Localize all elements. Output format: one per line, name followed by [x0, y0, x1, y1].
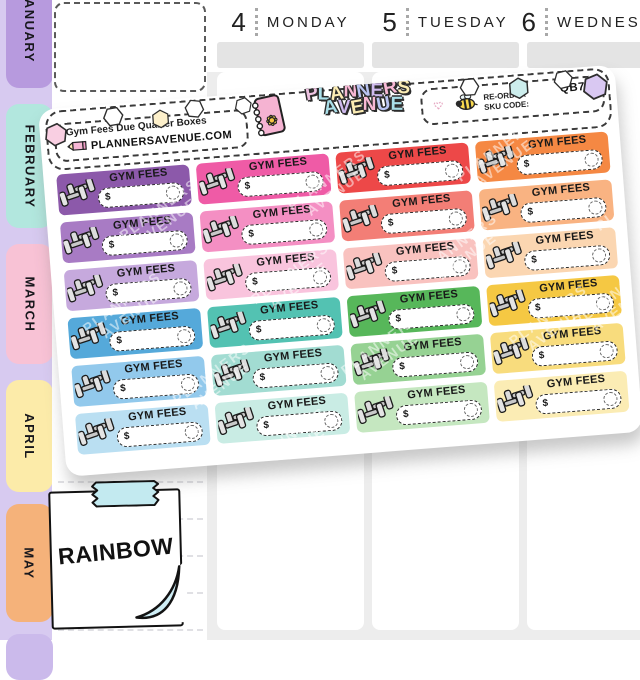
currency-symbol: $ [105, 192, 111, 203]
currency-symbol: $ [256, 324, 262, 335]
day-header: 4MONDAY [217, 4, 364, 40]
month-tab-partial[interactable] [6, 634, 53, 680]
amount-circle [320, 366, 335, 381]
currency-symbol: $ [523, 159, 529, 170]
amount-box: $ [112, 373, 199, 400]
gym-fees-sticker: GYM FEES$ [199, 201, 335, 252]
gym-fees-sticker: GYM FEES$ [350, 334, 486, 385]
currency-symbol: $ [399, 361, 405, 372]
currency-symbol: $ [108, 239, 114, 250]
month-tab-may[interactable]: MAY [6, 504, 53, 622]
sticker-grid: GYM FEES$GYM FEES$GYM FEES$GYM FEES$GYM … [56, 131, 629, 455]
gym-fees-sticker: GYM FEES$ [64, 260, 200, 311]
amount-circle [595, 296, 610, 311]
gym-fees-sticker: GYM FEES$ [211, 345, 347, 396]
amount-box: $ [380, 208, 467, 235]
amount-circle [448, 211, 463, 226]
amount-circle [460, 355, 475, 370]
currency-symbol: $ [116, 335, 122, 346]
amount-box: $ [252, 362, 339, 389]
currency-symbol: $ [542, 398, 548, 409]
currency-symbol: $ [123, 431, 129, 442]
allday-row-cell [527, 42, 640, 68]
gym-fees-sticker: GYM FEES$ [71, 356, 207, 407]
amount-box: $ [97, 182, 184, 209]
currency-symbol: $ [112, 287, 118, 298]
gym-fees-sticker: GYM FEES$ [67, 308, 203, 359]
amount-circle [312, 270, 327, 285]
amount-box: $ [101, 230, 188, 257]
gym-fees-sticker: GYM FEES$ [482, 227, 618, 278]
day-header: 6WEDNESDAY [527, 4, 640, 40]
currency-symbol: $ [120, 383, 126, 394]
amount-box: $ [388, 303, 475, 330]
amount-box: $ [116, 421, 203, 448]
amount-box: $ [524, 245, 611, 272]
day-number: 5 [382, 7, 396, 38]
day-number: 6 [521, 7, 535, 38]
hexagon-confetti-icon [552, 69, 574, 95]
amount-box: $ [241, 219, 328, 246]
month-tab-label: MARCH [22, 276, 37, 332]
amount-box: $ [376, 160, 463, 187]
amount-box: $ [395, 399, 482, 426]
gym-fees-sticker: GYM FEES$ [490, 323, 626, 374]
heart-icon [432, 97, 444, 116]
month-tab-label: JANUARY [22, 0, 37, 62]
currency-symbol: $ [384, 170, 390, 181]
amount-box: $ [520, 197, 607, 224]
gym-fees-sticker: GYM FEES$ [486, 275, 622, 326]
day-name: WEDNESDAY [557, 14, 640, 31]
amount-circle [456, 307, 471, 322]
currency-symbol: $ [527, 206, 533, 217]
allday-row-cell [372, 42, 519, 68]
gym-fees-sticker: GYM FEES$ [56, 164, 192, 215]
hexagon-confetti-icon [150, 109, 171, 134]
washi-tape [90, 480, 161, 513]
pencil-icon [66, 137, 87, 157]
amount-circle [184, 424, 199, 439]
gym-fees-sticker: GYM FEES$ [203, 249, 339, 300]
month-tab-label: FEBRUARY [22, 124, 37, 208]
hexagon-confetti-icon [184, 98, 206, 124]
amount-box: $ [527, 292, 614, 319]
month-tab-april[interactable]: APRIL [6, 380, 53, 492]
hexagon-confetti-icon [102, 105, 125, 133]
hexagon-confetti-icon [459, 76, 481, 102]
currency-symbol: $ [244, 181, 250, 192]
gym-fees-sticker: GYM FEES$ [475, 131, 611, 182]
month-tab-january[interactable]: JANUARY [6, 0, 53, 88]
page-curl [129, 562, 185, 628]
gym-fees-sticker: GYM FEES$ [75, 404, 211, 455]
gym-fees-sticker: GYM FEES$ [343, 238, 479, 289]
amount-circle [463, 402, 478, 417]
currency-symbol: $ [531, 254, 537, 265]
day-header: 5TUESDAY [372, 4, 519, 40]
currency-symbol: $ [391, 265, 397, 276]
gym-fees-sticker: GYM FEES$ [207, 297, 343, 348]
amount-box: $ [535, 388, 622, 415]
gym-fees-sticker: GYM FEES$ [60, 212, 196, 263]
currency-symbol: $ [263, 420, 269, 431]
day-name: MONDAY [267, 14, 350, 31]
amount-circle [599, 344, 614, 359]
amount-box: $ [256, 410, 343, 437]
currency-symbol: $ [535, 302, 541, 313]
month-tab-label: APRIL [22, 413, 37, 460]
amount-circle [180, 377, 195, 392]
month-tab-label: MAY [22, 547, 37, 579]
month-tab-march[interactable]: MARCH [6, 244, 53, 364]
amount-box: $ [516, 149, 603, 176]
currency-symbol: $ [403, 409, 409, 420]
note-line [58, 629, 203, 631]
currency-symbol: $ [388, 217, 394, 228]
hexagon-confetti-icon [234, 96, 254, 120]
amount-circle [452, 259, 467, 274]
amount-circle [309, 222, 324, 237]
sticker-sheet: Gym Fees Due Quarter Boxes PLANNERSAVENU… [38, 65, 640, 477]
brand-letter: E [390, 95, 403, 114]
currency-symbol: $ [395, 313, 401, 324]
currency-symbol: $ [248, 228, 254, 239]
gym-fees-sticker: GYM FEES$ [215, 393, 351, 444]
hexagon-confetti-icon [507, 76, 531, 105]
currency-symbol: $ [259, 372, 265, 383]
amount-box: $ [109, 325, 196, 352]
corner-notes-cell [54, 2, 206, 92]
hexagon-confetti-icon [43, 122, 69, 153]
amount-box: $ [392, 351, 479, 378]
amount-circle [324, 413, 339, 428]
gym-fees-sticker: GYM FEES$ [347, 286, 483, 337]
allday-row-cell [217, 42, 364, 68]
currency-symbol: $ [538, 350, 544, 361]
day-number-separator-icon [545, 8, 548, 36]
amount-box: $ [248, 314, 335, 341]
day-number-separator-icon [255, 8, 258, 36]
amount-circle [305, 174, 320, 189]
day-number-separator-icon [406, 8, 409, 36]
amount-box: $ [105, 278, 192, 305]
amount-circle [316, 318, 331, 333]
amount-box: $ [237, 171, 324, 198]
amount-circle [169, 233, 184, 248]
amount-circle [177, 329, 192, 344]
currency-symbol: $ [252, 276, 258, 287]
gym-fees-sticker: GYM FEES$ [479, 179, 615, 230]
amount-box: $ [384, 256, 471, 283]
day-number: 4 [231, 7, 245, 38]
amount-circle [588, 200, 603, 215]
gym-fees-sticker: GYM FEES$ [339, 190, 475, 241]
amount-circle [592, 248, 607, 263]
amount-circle [445, 163, 460, 178]
amount-circle [165, 185, 180, 200]
gym-fees-sticker: GYM FEES$ [196, 153, 332, 204]
day-name: TUESDAY [418, 14, 509, 31]
amount-circle [584, 152, 599, 167]
sticky-note: RAINBOW [48, 488, 184, 629]
gym-fees-sticker: GYM FEES$ [494, 371, 630, 422]
hexagon-confetti-icon [581, 72, 610, 106]
gym-fees-sticker: GYM FEES$ [354, 382, 490, 433]
amount-box: $ [244, 267, 331, 294]
amount-circle [173, 281, 188, 296]
gym-fees-sticker: GYM FEES$ [335, 142, 471, 193]
amount-circle [603, 391, 618, 406]
amount-box: $ [531, 340, 618, 367]
